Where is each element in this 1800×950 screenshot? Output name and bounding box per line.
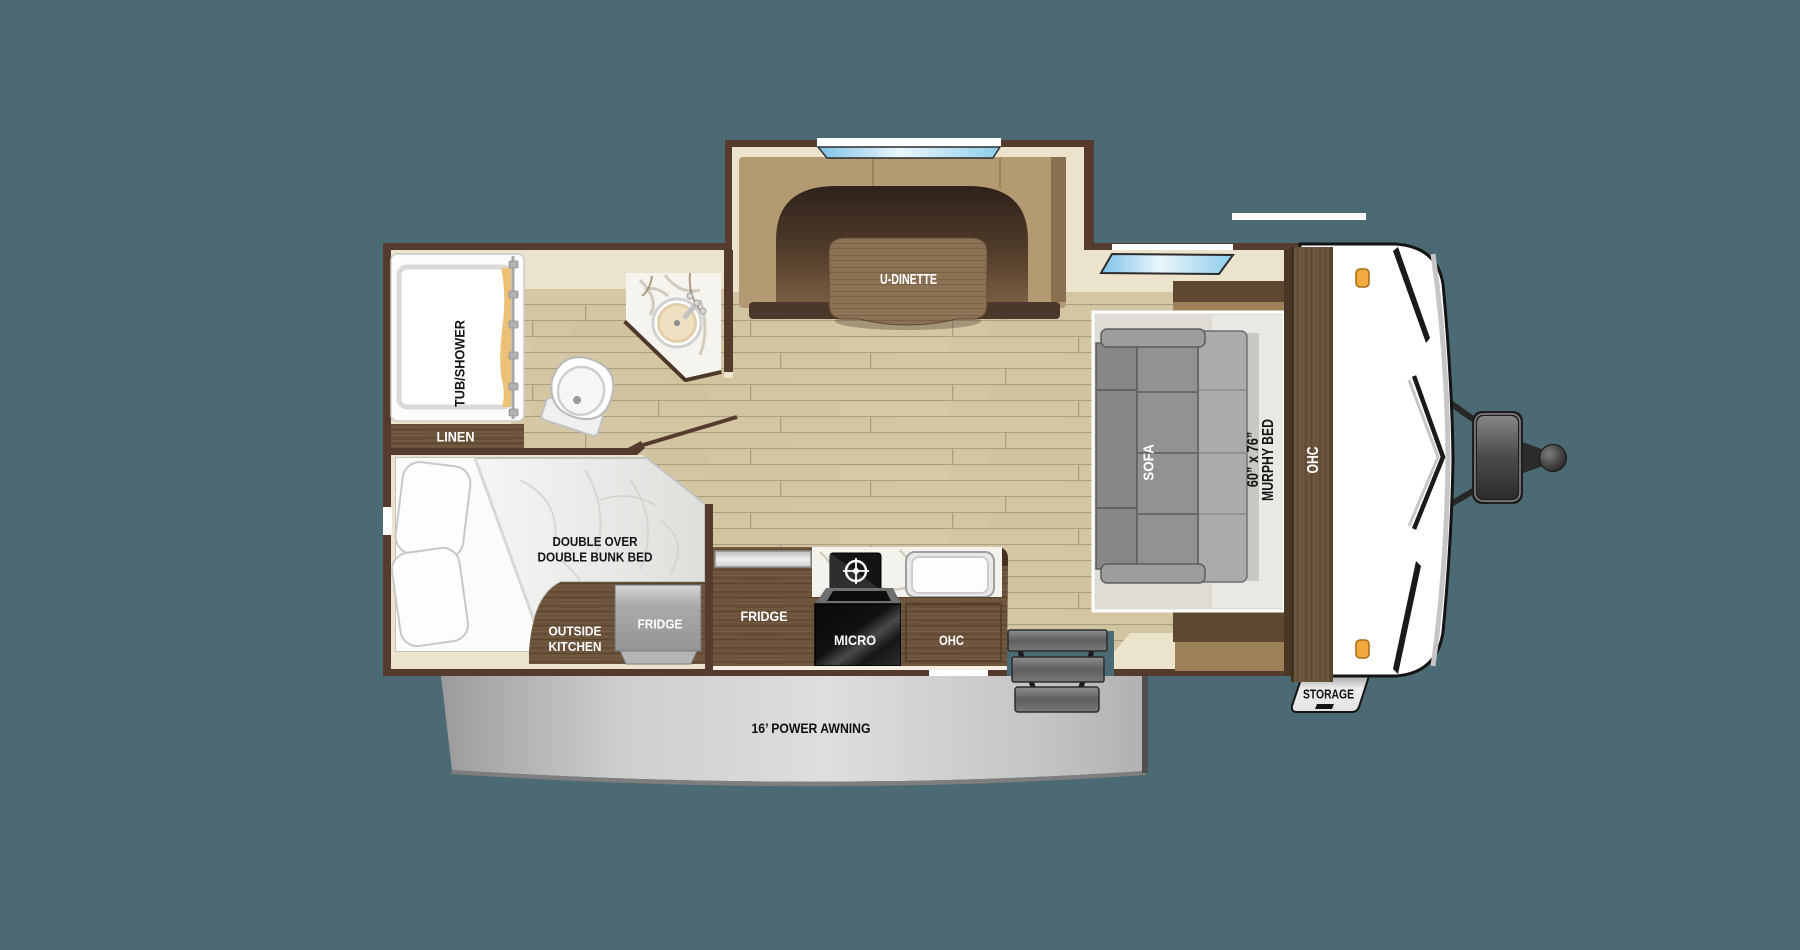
- svg-text:KITCHEN: KITCHEN: [549, 639, 602, 654]
- svg-text:SOFA: SOFA: [1142, 444, 1158, 481]
- svg-text:16’ POWER AWNING: 16’ POWER AWNING: [752, 721, 871, 737]
- svg-text:FRIDGE: FRIDGE: [741, 609, 788, 624]
- svg-text:STORAGE: STORAGE: [1303, 687, 1354, 702]
- svg-text:OUTSIDE: OUTSIDE: [549, 624, 602, 639]
- svg-text:LINEN: LINEN: [437, 430, 475, 445]
- svg-text:OHC: OHC: [1305, 447, 1322, 474]
- svg-text:FRIDGE: FRIDGE: [638, 617, 683, 632]
- svg-text:MURPHY BED: MURPHY BED: [1260, 419, 1277, 501]
- svg-text:DOUBLE OVER: DOUBLE OVER: [553, 534, 638, 549]
- svg-text:OHC: OHC: [939, 633, 964, 648]
- svg-text:MICRO: MICRO: [834, 633, 876, 648]
- svg-text:DOUBLE BUNK BED: DOUBLE BUNK BED: [538, 550, 653, 565]
- svg-text:TUB/SHOWER: TUB/SHOWER: [453, 320, 468, 407]
- svg-text:U-DINETTE: U-DINETTE: [880, 271, 937, 288]
